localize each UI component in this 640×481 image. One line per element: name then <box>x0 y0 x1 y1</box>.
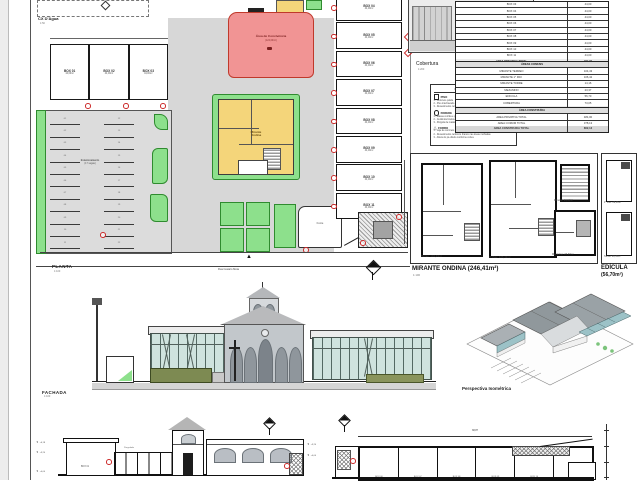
fachada-scale: 1:100 <box>44 396 50 399</box>
clerestory-band <box>512 446 570 456</box>
cornice-line <box>173 444 203 445</box>
sidewalk-band <box>92 383 436 390</box>
marker-stem <box>269 428 270 435</box>
parking-stall: 10 <box>50 225 80 237</box>
tower-window <box>181 434 196 444</box>
section-b-ground <box>332 477 594 479</box>
lamp-head <box>92 298 102 305</box>
parking-bank-right: 1213141516171819202122 <box>104 113 134 249</box>
landscape-island <box>150 194 168 222</box>
slab-line <box>207 444 303 445</box>
planter <box>246 228 270 252</box>
facade-arch <box>244 347 257 383</box>
pergola-label: Pergolado <box>124 447 134 450</box>
box-room: BOX 03 44,00m² <box>129 44 168 100</box>
level-marker: +3,20 <box>36 451 45 454</box>
door-marker-icon <box>160 103 166 109</box>
pav1-plan <box>489 160 557 258</box>
dimension-line <box>404 160 405 244</box>
box-units-column: BOX 04 44,00m² BOX 05 44,00m² BOX 06 44,… <box>336 0 402 221</box>
box-unit-row: BOX 04 44,00m² <box>336 0 402 21</box>
mezanino-label: Mezanino: 23,37m² <box>552 254 573 257</box>
cutoff-room-green <box>306 0 322 10</box>
isometric-view <box>455 282 640 386</box>
level-marker: +0,00 <box>36 470 45 473</box>
parking-stall: 16 <box>104 163 134 175</box>
red-convivencia-area: Área de Convivência (124,00m²) <box>228 12 314 78</box>
tower-roof <box>246 287 280 298</box>
pole-crossbar <box>229 347 240 349</box>
level-marker: +6,18 <box>36 441 45 444</box>
pergola <box>114 452 172 475</box>
cortes-drawing: BOX 01 Pergolado +6,18 +3,20 +0,00 +3,20… <box>0 410 640 480</box>
arched-window <box>242 448 264 463</box>
parking-stall: 13 <box>104 125 134 137</box>
section-cell: BOX 06 <box>360 448 399 479</box>
cobertura-title: Cobertura <box>416 62 438 68</box>
door-marker-icon <box>331 34 337 40</box>
torre-plan <box>560 164 590 202</box>
door-marker-icon <box>100 232 106 238</box>
stair-hatch <box>337 450 351 470</box>
box-room: BOX 02 44,00m² <box>89 44 128 100</box>
box-unit-row: BOX 05 44,00m² <box>336 22 402 49</box>
section-b-utility <box>335 446 360 479</box>
church-body <box>224 324 304 383</box>
cx-dagua-label: CX D'Água <box>38 17 59 22</box>
stair-core <box>621 162 630 169</box>
parking-stall: 22 <box>104 237 134 249</box>
parking-stall: 11 <box>50 237 80 249</box>
north-triangle-icon: ▲ <box>246 254 252 261</box>
table-areas-privativas: BOX 03 44,00 BOX 04 44,00 BOX 05 44,00 B… <box>455 1 609 65</box>
parking-stall: 05 <box>50 163 80 175</box>
mezanino-core <box>576 220 591 237</box>
planter <box>220 228 244 252</box>
wall-line <box>423 235 453 236</box>
lamp-post-icon <box>96 305 98 381</box>
street-name: Rua Cesário Mota <box>218 269 239 272</box>
parking-stall: 08 <box>50 200 80 212</box>
parking-stall: 17 <box>104 175 134 187</box>
wall-line <box>491 204 531 205</box>
stair <box>538 218 554 236</box>
table-area-construida: ÁREA CONSTRUÍDA ÁREA PRIVATIVA TOTAL 484… <box>455 107 609 133</box>
round-window-icon <box>261 329 269 337</box>
mirante-panel: Térreo: 104,43m² 1° Pav.: 106,42m² Miran… <box>410 153 598 264</box>
door-marker-icon <box>123 103 129 109</box>
edicula-pav1-label: 1° Pav.: 28,35m² <box>604 202 621 205</box>
porch <box>238 160 268 175</box>
planter-tall <box>274 204 296 248</box>
extinguisher-marker-icon <box>106 459 112 465</box>
wall-line <box>239 144 293 145</box>
landscape-island <box>152 148 168 184</box>
box-unit-row: BOX 07 44,00m² <box>336 79 402 106</box>
north-arrow-icon <box>366 260 382 276</box>
planta-drawing: CX D'Água 1:50 BOX 01 44,00m² BOX 02 44,… <box>30 0 410 282</box>
box-room: BOX 01 44,00m² <box>50 44 89 100</box>
extinguisher-marker-icon <box>350 458 356 464</box>
arched-window <box>214 448 236 463</box>
torre-label: Mirante: 14,16m² <box>554 200 573 203</box>
door-marker-icon <box>331 62 337 68</box>
box-unit-row: BOX 08 44,00m² <box>336 108 402 135</box>
dim-tick <box>604 462 609 463</box>
street-edge-line <box>36 266 410 267</box>
section-cell: BOX 09 <box>476 448 515 479</box>
perspectiva-drawing: Perspectiva Isométrica <box>455 282 640 392</box>
top-rooms-dim-line <box>50 38 168 39</box>
planta-title: PLANTA <box>52 264 72 269</box>
wall-line <box>423 211 461 212</box>
facade-arch <box>289 347 302 383</box>
box-unit-row: BOX 09 44,00m² <box>336 136 402 163</box>
door-marker-icon <box>331 175 337 181</box>
section-cell: BOX 07 <box>399 448 438 479</box>
section-a-right-building <box>206 439 304 476</box>
plan-symbol <box>267 47 272 50</box>
facade-arch <box>230 347 243 383</box>
marker-stem <box>344 425 345 432</box>
level-marker: +3,20 <box>307 443 316 446</box>
landscape-island <box>154 114 168 130</box>
edicula-panel: 1° Pav.: 28,35m² Térreo: 28,35m² <box>601 153 637 264</box>
dim-tick <box>604 477 609 478</box>
planter-olive <box>366 374 424 383</box>
wall-line <box>443 165 444 205</box>
stair-core <box>621 214 630 221</box>
parking-stall: 09 <box>50 212 80 224</box>
planter <box>246 202 270 226</box>
wall-line <box>219 128 259 129</box>
edicula-title: EDÍCULA <box>601 265 628 272</box>
section-b-dim-label: 38,87 <box>460 430 490 433</box>
wall-line <box>556 232 574 233</box>
edicula-subtitle: (56,70m²) <box>601 273 623 279</box>
street-curb-line <box>40 252 408 253</box>
door-marker-icon <box>85 103 91 109</box>
north-arrow-stem <box>372 272 373 280</box>
door-marker-icon <box>331 147 337 153</box>
tower-section-body <box>172 430 204 476</box>
box-unit-row: BOX 06 44,00m² <box>336 51 402 78</box>
top-box-rooms: BOX 01 44,00m² BOX 02 44,00m² BOX 03 44,… <box>50 44 168 100</box>
church-roof <box>220 306 306 325</box>
parking-stall: 04 <box>50 150 80 162</box>
door-marker-icon <box>331 90 337 96</box>
tower-pyramid-roof <box>168 417 206 430</box>
table-total-row: ÁREA CONSTRUÍDA TOTAL 862,13 <box>456 126 608 131</box>
pav1-label: 1° Pav.: 106,42m² <box>489 256 510 259</box>
edicula-terreo-plan <box>606 212 632 256</box>
facade-arch <box>275 347 288 383</box>
parking-stall: 20 <box>104 212 134 224</box>
dim-tick <box>604 430 609 431</box>
terreo-plan <box>421 163 483 257</box>
cobertura-scale: 1:200 <box>418 69 424 72</box>
cx-dagua-scale: 1:50 <box>40 23 45 26</box>
stair <box>464 223 480 241</box>
parking-stall: 14 <box>104 138 134 150</box>
box-unit-row: BOX 10 44,00m² <box>336 164 402 191</box>
parking-stall: 03 <box>50 138 80 150</box>
parking-stall: 21 <box>104 225 134 237</box>
mirante-panel-title: MIRANTE ONDINA (246,41m²) <box>412 265 498 272</box>
parking-stall: 01 <box>50 113 80 125</box>
mirante-panel-scale: 1:100 <box>413 274 420 277</box>
door-dark <box>183 453 193 475</box>
table-areas-comuns: ÁREAS COMUNS MIRANTE TÉRREO 104,43 MIRAN… <box>455 61 609 112</box>
parking-stall: 06 <box>50 175 80 187</box>
architectural-sheet: { "colors":{"red_fill":"#f19494","red_bo… <box>0 0 640 480</box>
edicula-pav1-plan <box>606 160 632 202</box>
stair-hatch <box>289 453 303 475</box>
extinguisher-marker-icon <box>284 463 290 469</box>
door-marker-icon <box>331 5 337 11</box>
planter <box>220 202 244 226</box>
planta-scale: 1:100 <box>54 271 60 274</box>
vertical-dim-bar <box>606 424 607 480</box>
wall-line <box>515 162 516 198</box>
cx-dagua-outline <box>37 0 149 17</box>
parking-stall: 18 <box>104 187 134 199</box>
dim-tick <box>604 446 609 447</box>
parking-stall: 07 <box>50 187 80 199</box>
door-marker-icon <box>331 119 337 125</box>
section-b-dim-line <box>358 436 592 437</box>
door-marker-icon <box>396 214 402 220</box>
parking-stall: 12 <box>104 113 134 125</box>
level-marker: +0,00 <box>307 454 316 457</box>
terreo-label: Térreo: 104,43m² <box>421 255 442 258</box>
door-marker-icon <box>331 204 337 210</box>
parking-bank-left: 0102030405060708091011 <box>50 113 80 249</box>
door-marker-icon <box>360 240 366 246</box>
mezanino-plan <box>554 210 596 256</box>
edicula-terreo-label: Térreo: 28,35m² <box>604 256 620 259</box>
parking-stall: 19 <box>104 200 134 212</box>
estacionamento-label: Estacionamento (17 vagas) <box>78 160 102 166</box>
perspectiva-title: Perspectiva Isométrica <box>462 386 511 391</box>
sheet-margin-strip <box>0 0 9 480</box>
planter-olive <box>150 368 212 383</box>
structure-core <box>373 221 393 239</box>
landscape-strip <box>36 110 46 254</box>
roof-slab <box>63 438 119 443</box>
parking-stall: 02 <box>50 125 80 137</box>
facade-door <box>258 339 273 383</box>
parking-stall: 15 <box>104 150 134 162</box>
legend-item: 3 - Altura do pé-direito conforme cortes <box>434 137 514 140</box>
section-cell: BOX 08 <box>438 448 477 479</box>
